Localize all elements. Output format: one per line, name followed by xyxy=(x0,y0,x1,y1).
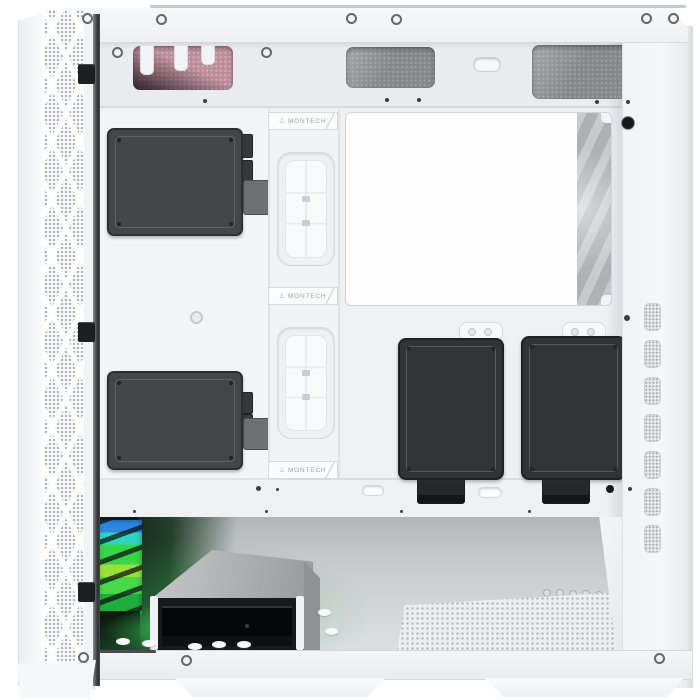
screw xyxy=(112,47,123,58)
screw xyxy=(346,13,357,24)
front-panel-foot xyxy=(16,660,96,698)
expansion-slot-vent xyxy=(644,451,661,479)
montech-badge: △ MONTECH xyxy=(268,461,338,479)
horizontal-seam xyxy=(100,106,622,108)
montech-triangle-logo-icon: △ xyxy=(280,467,285,473)
floor-cutout xyxy=(318,609,331,616)
motherboard-tray-opening xyxy=(345,112,612,306)
screw-hole xyxy=(203,99,207,103)
expansion-slot-vent xyxy=(644,414,661,442)
screw-hole xyxy=(624,315,630,321)
screw-hole xyxy=(595,100,599,104)
screw-hole xyxy=(417,98,421,102)
top-frame-rail xyxy=(62,8,688,43)
floor-cutout xyxy=(116,638,130,645)
front-panel-outer-edge xyxy=(18,12,45,694)
drive-contour xyxy=(115,136,235,228)
fan-frame-corner xyxy=(601,112,612,123)
floor-cutout xyxy=(237,641,251,648)
montech-badge-label: MONTECH xyxy=(288,467,326,474)
screw-hole xyxy=(528,510,531,513)
screw-hole xyxy=(628,487,632,491)
montech-triangle-logo-icon: △ xyxy=(280,293,285,299)
montech-triangle-logo-icon: △ xyxy=(280,118,285,124)
product-photo-scene: △ MONTECH △ MONTECH △ MONTECH xyxy=(0,0,700,700)
screw xyxy=(82,13,93,24)
expansion-slot-vent xyxy=(644,303,661,331)
grommet-inner xyxy=(285,335,327,431)
grommet-inner xyxy=(285,160,327,258)
montech-badge: △ MONTECH xyxy=(268,112,338,130)
top-vent-cutout-middle xyxy=(346,47,435,88)
floor-cutout xyxy=(212,641,226,648)
fan-frame-corner xyxy=(601,295,612,306)
cage-hdd-face xyxy=(162,606,292,646)
montech-badge-label: MONTECH xyxy=(288,293,326,300)
rivet xyxy=(543,589,551,597)
expansion-slot-vent xyxy=(644,340,661,368)
ssd-drive-right xyxy=(521,336,626,480)
standoff-hole xyxy=(190,311,203,324)
expansion-slot-vent xyxy=(644,488,661,516)
screw-hole xyxy=(133,510,136,513)
screw-hole xyxy=(276,488,279,491)
expansion-slot-vent xyxy=(644,377,661,405)
floor-cutout xyxy=(188,643,202,650)
screw-hole xyxy=(400,510,403,513)
floor-cutout xyxy=(142,640,156,647)
cable-grommet-cover-bottom xyxy=(277,327,335,439)
cutout-tab xyxy=(140,46,154,75)
rear-exhaust-fan xyxy=(577,113,611,305)
screw xyxy=(668,13,679,24)
screw-hole xyxy=(265,510,268,513)
screw xyxy=(261,47,272,58)
wall-slot xyxy=(478,487,502,498)
thumbscrew xyxy=(606,485,614,493)
top-vent-cutout-right xyxy=(532,45,628,99)
wall-slot xyxy=(362,485,384,496)
screw-hole xyxy=(385,98,389,102)
cutout-tab xyxy=(201,46,215,65)
case-foot-front xyxy=(168,678,392,697)
cable-grommet-cover-top xyxy=(277,152,335,266)
psu-compartment xyxy=(100,517,622,650)
drive-contour xyxy=(529,344,618,472)
drive-contour xyxy=(406,346,496,472)
screw xyxy=(654,653,665,664)
drive-contour xyxy=(115,379,235,462)
hdd-drive-bottom xyxy=(107,371,243,470)
screw xyxy=(391,14,402,25)
screw xyxy=(641,13,652,24)
ssd-drive-left xyxy=(398,338,504,480)
floor-cutout xyxy=(325,628,338,635)
screw-hole xyxy=(626,100,630,104)
hdd-drive-top xyxy=(107,128,243,236)
montech-badge-label: MONTECH xyxy=(288,118,326,125)
bottom-frame-rail xyxy=(60,650,692,680)
cutout-tab xyxy=(174,46,188,71)
side-panel-clip xyxy=(78,322,95,342)
thumbscrew xyxy=(621,116,635,130)
front-rgb-fan xyxy=(100,520,142,615)
side-panel-clip xyxy=(78,64,95,84)
handle-notch xyxy=(473,57,501,72)
side-panel-clip xyxy=(78,582,95,602)
expansion-slot-vent xyxy=(644,525,661,553)
bottom-dust-filter xyxy=(390,590,622,650)
screw-hole xyxy=(256,486,261,491)
montech-badge: △ MONTECH xyxy=(268,287,338,305)
cage-rail xyxy=(296,596,304,650)
screw xyxy=(181,655,192,666)
case-foot-rear xyxy=(478,678,690,697)
screw xyxy=(156,14,167,25)
screw xyxy=(78,652,89,663)
floor-screw-hole xyxy=(245,624,249,628)
top-panel-edge xyxy=(150,5,686,8)
